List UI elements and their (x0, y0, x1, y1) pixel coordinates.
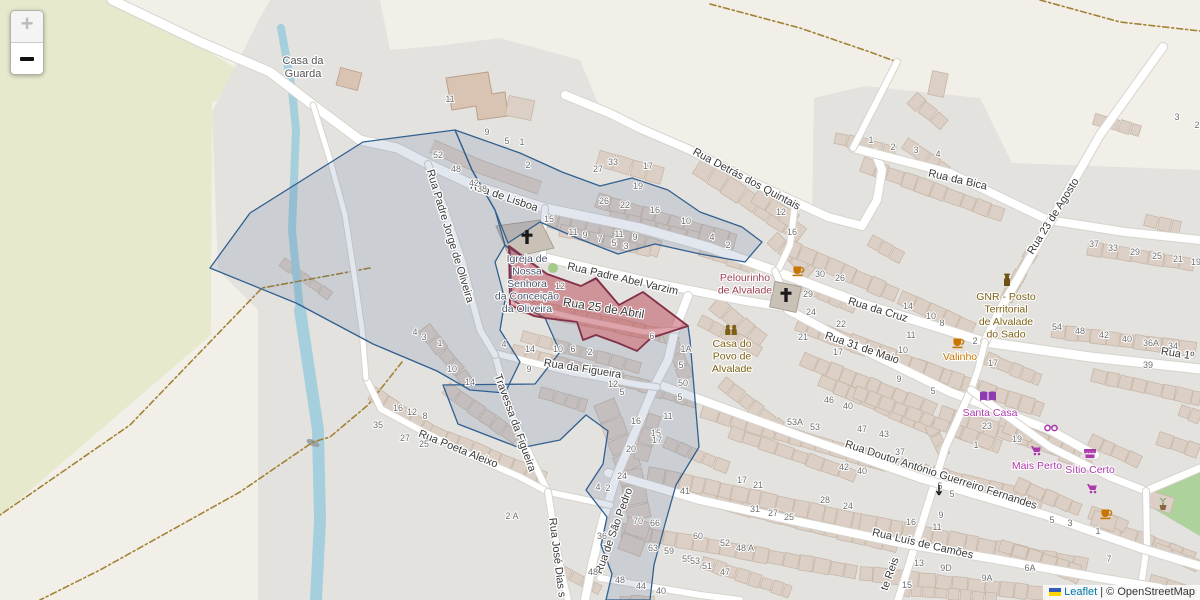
svg-text:60: 60 (693, 531, 703, 541)
svg-text:25: 25 (1152, 251, 1162, 261)
svg-text:Valinho: Valinho (943, 351, 977, 363)
svg-text:2: 2 (525, 160, 530, 170)
svg-text:1A: 1A (680, 344, 691, 354)
svg-text:2 A: 2 A (505, 511, 518, 521)
svg-text:25: 25 (419, 439, 429, 449)
svg-text:15: 15 (902, 580, 912, 590)
svg-text:47: 47 (720, 567, 730, 577)
svg-text:40: 40 (1122, 334, 1132, 344)
svg-text:11: 11 (906, 330, 915, 340)
svg-text:34: 34 (1168, 341, 1178, 351)
svg-text:33: 33 (1108, 243, 1118, 253)
svg-text:27: 27 (400, 433, 410, 443)
svg-text:1: 1 (437, 338, 442, 348)
svg-text:10: 10 (553, 344, 563, 354)
svg-text:40: 40 (857, 466, 867, 476)
svg-text:17: 17 (737, 475, 747, 485)
svg-text:10: 10 (447, 364, 457, 374)
svg-text:9: 9 (484, 127, 489, 137)
svg-text:16: 16 (631, 416, 641, 426)
svg-text:37: 37 (895, 447, 905, 457)
svg-text:11: 11 (614, 229, 623, 239)
svg-text:17: 17 (988, 358, 998, 368)
svg-text:Nossa: Nossa (512, 266, 542, 278)
svg-text:48: 48 (451, 164, 461, 174)
svg-text:10: 10 (898, 345, 908, 355)
svg-text:26: 26 (835, 273, 845, 283)
svg-text:5: 5 (949, 489, 954, 499)
svg-text:48: 48 (1075, 326, 1085, 336)
svg-text:2: 2 (890, 142, 895, 152)
svg-text:7: 7 (1106, 554, 1111, 564)
svg-text:5: 5 (677, 392, 682, 402)
svg-text:35: 35 (373, 420, 383, 430)
svg-text:4: 4 (709, 232, 714, 242)
svg-text:Senhora: Senhora (507, 278, 547, 290)
svg-text:9: 9 (632, 232, 637, 242)
svg-text:3: 3 (623, 241, 628, 251)
svg-text:de Alvalade: de Alvalade (718, 285, 772, 297)
svg-text:9A: 9A (981, 573, 992, 583)
svg-text:21: 21 (1173, 254, 1183, 264)
svg-text:4: 4 (595, 482, 600, 492)
svg-text:53A: 53A (787, 417, 803, 427)
svg-text:16: 16 (787, 227, 797, 237)
svg-text:10: 10 (681, 216, 691, 226)
svg-text:9: 9 (526, 364, 531, 374)
svg-text:Povo de: Povo de (713, 351, 752, 363)
svg-text:48: 48 (588, 567, 598, 577)
svg-text:5: 5 (678, 360, 683, 370)
svg-text:29: 29 (1130, 247, 1140, 257)
svg-text:66: 66 (650, 518, 660, 528)
svg-text:19: 19 (633, 181, 643, 191)
svg-text:5: 5 (619, 387, 624, 397)
svg-text:36A: 36A (1143, 338, 1159, 348)
svg-text:24: 24 (617, 471, 627, 481)
svg-text:19: 19 (1012, 434, 1022, 444)
svg-text:4: 4 (501, 339, 506, 349)
svg-text:24: 24 (843, 501, 853, 511)
svg-text:6: 6 (649, 331, 654, 341)
svg-text:21: 21 (798, 332, 808, 342)
svg-text:2: 2 (587, 347, 592, 357)
svg-text:47: 47 (857, 424, 867, 434)
svg-text:51: 51 (702, 561, 712, 571)
svg-text:14: 14 (903, 301, 913, 311)
svg-text:Alvalade: Alvalade (712, 363, 752, 375)
svg-text:31: 31 (750, 504, 760, 514)
svg-text:7: 7 (597, 234, 602, 244)
svg-text:25: 25 (784, 512, 794, 522)
svg-text:63: 63 (648, 543, 658, 553)
svg-text:53: 53 (810, 422, 820, 432)
svg-text:16: 16 (906, 517, 916, 527)
svg-text:de Alvalade: de Alvalade (979, 316, 1033, 328)
svg-text:5: 5 (930, 386, 935, 396)
svg-text:5: 5 (1049, 515, 1054, 525)
svg-text:59: 59 (664, 546, 674, 556)
svg-text:Mais Perto: Mais Perto (1012, 460, 1062, 472)
svg-text:9: 9 (896, 374, 901, 384)
svg-text:5: 5 (611, 238, 616, 248)
svg-text:12: 12 (407, 407, 417, 417)
svg-text:23: 23 (982, 421, 992, 431)
svg-text:Casa do: Casa do (712, 338, 751, 350)
svg-text:11: 11 (663, 411, 672, 421)
svg-text:11: 11 (932, 522, 941, 532)
svg-text:1: 1 (1095, 526, 1100, 536)
svg-text:8: 8 (939, 318, 944, 328)
svg-text:70: 70 (633, 516, 643, 526)
svg-text:26: 26 (599, 196, 609, 206)
svg-text:33: 33 (608, 157, 618, 167)
svg-text:11: 11 (568, 227, 577, 237)
svg-text:19: 19 (1191, 257, 1200, 267)
svg-text:24: 24 (806, 307, 816, 317)
svg-text:10: 10 (926, 311, 936, 321)
svg-text:40: 40 (843, 401, 853, 411)
svg-text:13: 13 (914, 558, 924, 568)
svg-text:43: 43 (879, 429, 889, 439)
svg-text:1: 1 (868, 135, 873, 145)
svg-text:52: 52 (720, 538, 730, 548)
svg-text:46: 46 (824, 395, 834, 405)
svg-text:3: 3 (1174, 112, 1179, 122)
svg-text:Territorial: Territorial (984, 304, 1027, 316)
svg-text:21: 21 (753, 480, 763, 490)
svg-text:9: 9 (938, 510, 943, 520)
svg-text:15: 15 (544, 214, 554, 224)
svg-text:27: 27 (593, 164, 603, 174)
svg-text:9D: 9D (940, 563, 952, 573)
svg-text:38: 38 (477, 184, 487, 194)
svg-text:3: 3 (421, 332, 426, 342)
svg-text:12: 12 (555, 281, 565, 291)
svg-text:27: 27 (768, 508, 778, 518)
svg-text:Casa da: Casa da (283, 55, 325, 67)
svg-text:da Oliveira: da Oliveira (502, 303, 552, 315)
svg-text:36: 36 (597, 531, 607, 541)
svg-text:16: 16 (650, 205, 660, 215)
svg-text:2: 2 (725, 240, 730, 250)
svg-text:4: 4 (935, 149, 940, 159)
svg-text:42: 42 (1099, 330, 1109, 340)
svg-text:28: 28 (820, 495, 830, 505)
svg-text:39: 39 (1143, 360, 1153, 370)
svg-text:41: 41 (680, 486, 690, 496)
svg-text:Guarda: Guarda (285, 68, 323, 80)
svg-text:12: 12 (776, 207, 786, 217)
svg-text:22: 22 (620, 200, 630, 210)
svg-text:2: 2 (1194, 120, 1199, 130)
svg-text:GNR - Posto: GNR - Posto (976, 291, 1036, 303)
svg-text:30: 30 (815, 269, 825, 279)
svg-text:48 A: 48 A (736, 543, 754, 553)
svg-text:40: 40 (656, 586, 666, 596)
svg-text:8: 8 (422, 411, 427, 421)
svg-text:14: 14 (525, 344, 535, 354)
svg-text:Pelourinho: Pelourinho (720, 272, 770, 284)
svg-text:17: 17 (652, 435, 662, 445)
svg-text:1: 1 (973, 440, 978, 450)
svg-text:50: 50 (678, 378, 688, 388)
svg-text:20: 20 (626, 444, 636, 454)
svg-text:53: 53 (690, 556, 700, 566)
svg-text:17: 17 (643, 161, 653, 171)
svg-text:37: 37 (1089, 239, 1099, 249)
svg-text:9: 9 (582, 230, 587, 240)
svg-text:54: 54 (1052, 322, 1062, 332)
svg-text:42: 42 (839, 462, 849, 472)
svg-text:5: 5 (504, 136, 509, 146)
svg-text:29: 29 (803, 289, 813, 299)
svg-text:14: 14 (465, 377, 475, 387)
svg-text:4: 4 (412, 327, 417, 337)
svg-text:11: 11 (445, 94, 454, 104)
svg-text:44: 44 (636, 581, 646, 591)
svg-text:da Conceição: da Conceição (495, 291, 559, 303)
svg-text:16: 16 (393, 403, 403, 413)
svg-text:2: 2 (605, 483, 610, 493)
svg-text:2: 2 (972, 336, 977, 346)
svg-text:12: 12 (608, 379, 618, 389)
svg-text:3: 3 (913, 145, 918, 155)
svg-text:3: 3 (1067, 518, 1072, 528)
svg-text:Sítio Certo: Sítio Certo (1065, 464, 1115, 476)
svg-text:1: 1 (519, 137, 524, 147)
svg-text:6A: 6A (1024, 563, 1035, 573)
svg-text:6: 6 (570, 344, 575, 354)
svg-text:22: 22 (836, 319, 846, 329)
svg-text:5: 5 (937, 481, 942, 491)
svg-text:52: 52 (433, 150, 443, 160)
svg-text:48: 48 (615, 575, 625, 585)
svg-text:17: 17 (833, 347, 843, 357)
svg-text:Santa Casa: Santa Casa (963, 407, 1018, 419)
svg-text:do Sado: do Sado (986, 329, 1025, 341)
svg-text:Igreja de: Igreja de (507, 253, 548, 265)
